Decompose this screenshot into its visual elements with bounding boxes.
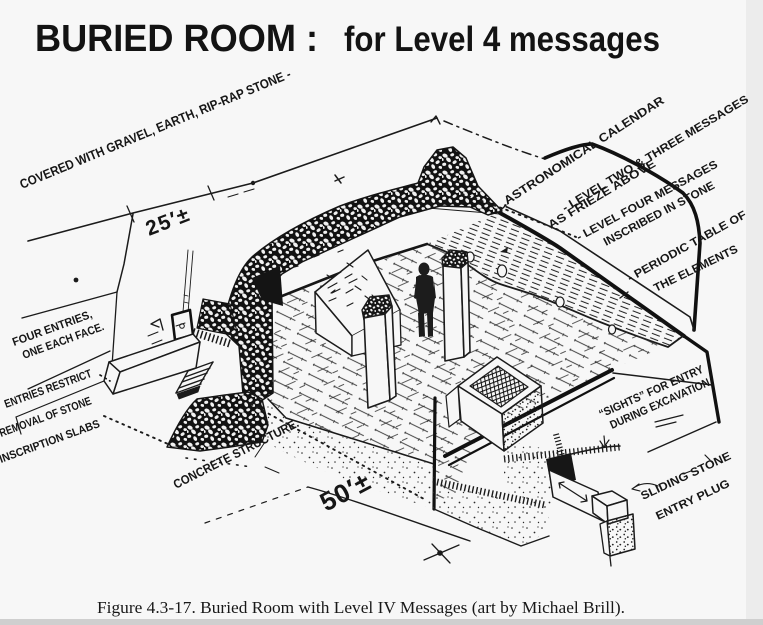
svg-text:BURIED ROOM :: BURIED ROOM : <box>35 18 318 60</box>
svg-text:Figure 4.3-17. Buried Room wi: Figure 4.3-17. Buried Room with Level IV… <box>97 598 625 617</box>
svg-text:for Level 4 messages: for Level 4 messages <box>344 20 660 59</box>
